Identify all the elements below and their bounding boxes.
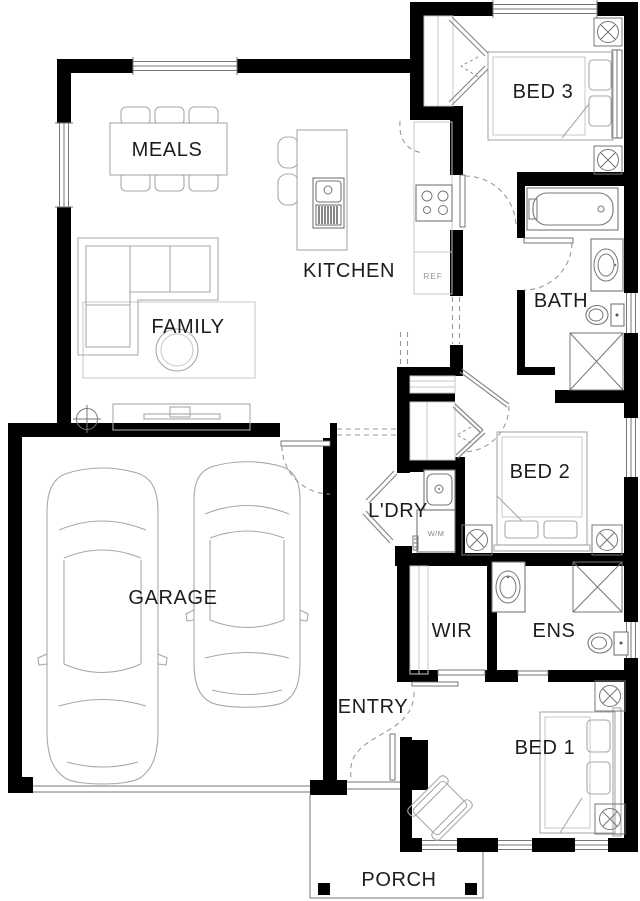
window-bed3-top [493, 0, 597, 18]
car-1 [38, 468, 167, 784]
bed2-bed [494, 432, 590, 551]
car-2 [186, 462, 308, 708]
floor-plan: MEALS REF KITCHEN [0, 0, 640, 901]
window-meals-top [133, 57, 237, 75]
bath-door [524, 238, 573, 290]
bath-toilet [586, 304, 624, 326]
room-label-meals: MEALS [132, 139, 203, 161]
vent-icon [462, 525, 492, 555]
front-door-sill [347, 782, 400, 789]
room-label-wir: WIR [432, 620, 473, 642]
room-label-bed3: BED 3 [513, 81, 574, 103]
floor-plan-page: MEALS REF KITCHEN [0, 0, 640, 901]
porch-post [465, 883, 477, 895]
window-bed1-south-3 [575, 838, 608, 852]
bath-shower [570, 333, 623, 390]
bed1-hall-door [412, 682, 458, 686]
room-label-porch: PORCH [361, 869, 436, 891]
ens-vanity-basin [492, 562, 525, 612]
ens-shower [573, 562, 622, 612]
window-meals-left [55, 123, 73, 207]
porch-post [318, 883, 330, 895]
room-entry: ENTRY [338, 682, 458, 789]
bed1-bed [540, 708, 621, 836]
island-sink [313, 178, 344, 228]
room-label-bed2: BED 2 [510, 461, 571, 483]
vent-icon [592, 525, 622, 555]
wir-door [438, 670, 485, 675]
fridge-label: REF [423, 271, 442, 281]
room-bed1: BED 1 [406, 681, 625, 842]
bed3-robe [424, 16, 488, 106]
window-bath-east [624, 293, 638, 333]
coffee-table-inner [161, 334, 193, 366]
room-label-laundry: L'DRY [368, 500, 428, 522]
garage-door [33, 786, 310, 792]
room-bath: BATH [524, 188, 624, 390]
room-garage: GARAGE [33, 441, 330, 792]
pantry-door-swing-arc [400, 121, 423, 153]
bath-vanity-basin [591, 239, 623, 291]
room-laundry: W/M L'DRY [363, 470, 455, 552]
laundry-trough [424, 470, 455, 510]
washing-machine-label: W/M [428, 529, 445, 538]
garage-internal-door [281, 441, 330, 494]
cooktop [416, 185, 452, 221]
rug [83, 302, 255, 378]
room-label-entry: ENTRY [338, 696, 408, 718]
vent-icon [594, 146, 622, 174]
window-bed1-south-2 [498, 838, 532, 852]
room-label-bed1: BED 1 [515, 737, 576, 759]
room-ens: ENS [492, 562, 628, 675]
room-label-family: FAMILY [151, 316, 224, 338]
room-kitchen: REF KITCHEN [278, 121, 452, 294]
window-bed2-east [624, 418, 638, 477]
hall-linen [410, 376, 485, 460]
hall-door [460, 175, 516, 227]
vent-icon [595, 681, 625, 711]
room-label-bath: BATH [534, 290, 588, 312]
room-family: FAMILY [73, 238, 255, 433]
room-label-garage: GARAGE [128, 587, 217, 609]
ens-toilet [588, 632, 628, 655]
ens-door [518, 671, 548, 675]
room-label-kitchen: KITCHEN [303, 260, 395, 282]
room-wir: WIR [410, 566, 485, 675]
bathtub [527, 188, 618, 230]
fridge-space: REF [414, 252, 452, 294]
front-door-leaf [390, 734, 395, 780]
room-meals: MEALS [110, 107, 227, 191]
room-label-ens: ENS [533, 620, 576, 642]
island-stools [278, 137, 299, 205]
vent-icon [594, 18, 622, 46]
